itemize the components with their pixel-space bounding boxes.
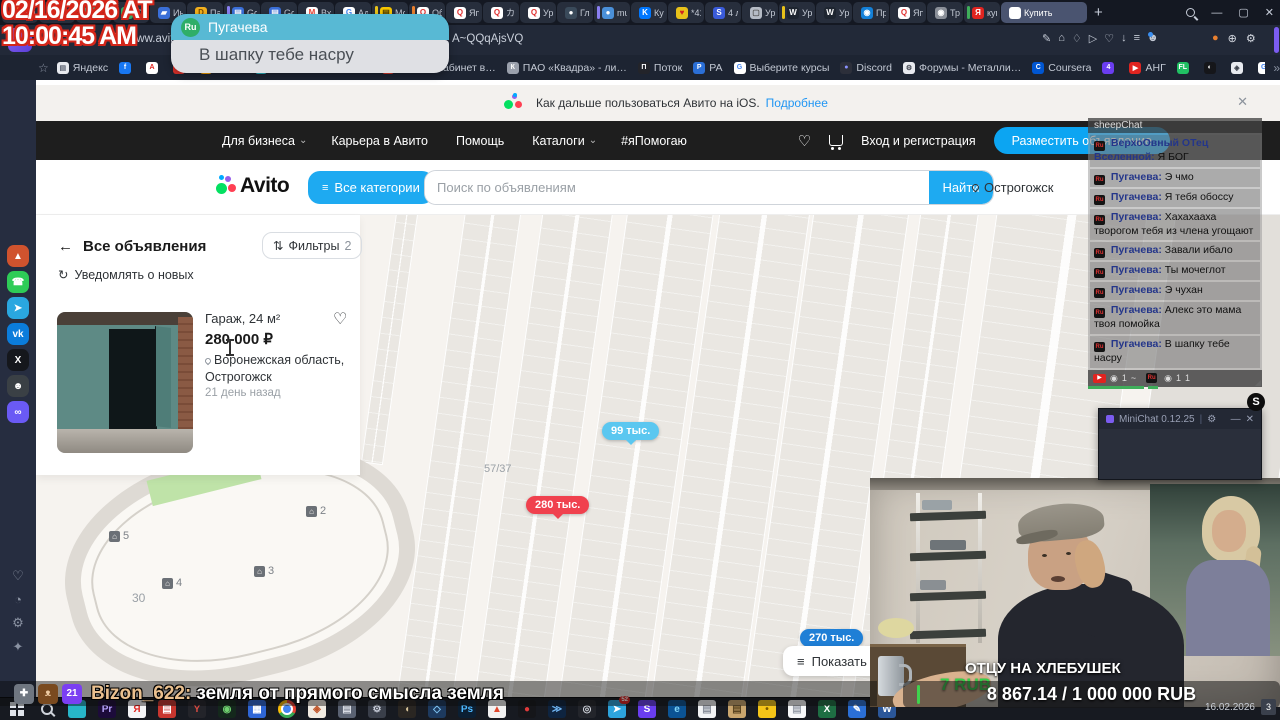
maximize-button[interactable]: ▢	[1238, 6, 1248, 19]
new-tab-button[interactable]: +	[1094, 4, 1103, 21]
tab-group-bar	[597, 6, 600, 19]
back-to-listings[interactable]: ← Все объявления	[58, 238, 206, 255]
viewer-count: 1	[1176, 373, 1181, 383]
bookmark-label: Coursera	[1048, 62, 1091, 74]
tab-label: *41	[691, 8, 701, 18]
tab-favicon: W	[824, 7, 836, 19]
listing-age: 21 день назад	[205, 387, 281, 399]
tab-group-bar	[560, 6, 563, 19]
bookmark-label: ПАО «Квадра» - ли…	[523, 62, 627, 74]
bookmark-item[interactable]: П Поток	[638, 62, 682, 74]
chevron-down-icon: ⌄	[589, 135, 597, 146]
plastic-bag	[878, 618, 914, 638]
tab-favicon: ♥	[676, 7, 688, 19]
toolbar-icon[interactable]: ≡	[1134, 32, 1140, 45]
nav-link-label: Для бизнеса	[222, 134, 295, 148]
toolbar-icon[interactable]: ♡	[1104, 32, 1114, 45]
bookmark-label: Discord	[856, 62, 892, 74]
bookmark-label: РА	[709, 62, 722, 74]
chat-message-text: земля от прямого смысла земля	[196, 683, 504, 705]
tab-group-bar	[523, 6, 526, 19]
chat-badge-icon: ᴥ	[38, 684, 58, 704]
nav-link-label: Карьера в Авито	[331, 134, 428, 148]
bookmark-item[interactable]: ⚙ Форумы - Металли…	[903, 62, 1021, 74]
map-price-pin[interactable]: 270 тыс.	[800, 629, 863, 647]
tab-favicon: ▰	[158, 7, 170, 19]
platform-badge-icon: Ru	[1094, 175, 1105, 185]
map-house-marker: ⌂ 5	[109, 530, 129, 542]
geo-pin-icon	[971, 183, 981, 193]
filters-icon: ⇅	[273, 238, 283, 253]
download-badge	[1148, 32, 1153, 37]
bookmark-favicon: ◈	[1231, 62, 1243, 74]
house-number: 5	[123, 530, 129, 542]
map-house-marker: ⌂ 2	[306, 505, 326, 517]
chat-username: Пугачева:	[1111, 244, 1162, 256]
chat-username: Пугачева:	[1111, 171, 1162, 183]
browser-right-icons: ●⊕⚙	[1212, 32, 1256, 45]
platform-badge-icon: Ru	[1094, 248, 1105, 258]
text-cursor	[229, 339, 231, 356]
map-area-label: 30	[132, 591, 145, 605]
tab-favicon: ●	[565, 7, 577, 19]
browser-sidebar: ▲☎➤vkX☻∞ ♡◔⚙✦	[0, 80, 36, 697]
tab-group-bar	[893, 6, 896, 19]
system-tray: 16.02.2026 3	[1205, 699, 1276, 715]
sheep-logo-icon[interactable]: S	[1247, 393, 1265, 411]
bookmark-favicon: G	[1258, 62, 1266, 74]
browser-tab[interactable]: ◉ Тре	[927, 2, 963, 23]
tab-favicon: ▢	[750, 7, 762, 19]
nav-links: Для бизнеса ⌄ Карьера в Авито Помощь Кат…	[222, 134, 691, 148]
cart-icon[interactable]	[829, 135, 843, 146]
banner-text: Как дальше пользоваться Авито на iOS.	[536, 96, 760, 110]
bookmark-item[interactable]: ● Discord	[840, 62, 892, 74]
browser-menu-icon[interactable]: ●	[1212, 32, 1219, 45]
browser-tab[interactable]: Q カタ	[483, 2, 519, 23]
viewer-count: 1	[1122, 373, 1127, 383]
bookmark-favicon: ▤	[57, 62, 69, 74]
listing-photo[interactable]	[57, 312, 193, 453]
close-icon[interactable]: ✕	[1246, 414, 1254, 425]
sheepchat-messages: Ru ВерхоОвный ОТец Вселенной: Я БОГ Ru П…	[1088, 135, 1262, 368]
search-group: Найти	[424, 170, 994, 205]
platform-badge-icon: Ru	[1094, 288, 1105, 298]
nav-link[interactable]: Помощь	[456, 134, 508, 148]
browser-tab[interactable]: ● mu	[594, 2, 630, 23]
bookmark-item[interactable]: ◐	[1204, 62, 1220, 74]
shelf-board	[910, 511, 986, 522]
url-text-suffix[interactable]: A~QQqAjsVQ	[452, 33, 523, 45]
bookmark-item[interactable]: C Coursera	[1032, 62, 1091, 74]
chat-message: Ru Пугачева: Ты мочеглот	[1090, 262, 1260, 280]
tab-label: 4 лу	[728, 8, 738, 18]
list-icon: ≡	[797, 654, 805, 669]
chat-message: Ru Пугачева: В шапку тебе насру	[1090, 336, 1260, 368]
tab-label: куп	[987, 8, 997, 18]
browser-tab[interactable]: S 4 лу	[705, 2, 741, 23]
browser-tab[interactable]: Q Уро	[520, 2, 556, 23]
tab-label: Тре	[950, 8, 960, 18]
listing-location: Воронежская область, Острогожск	[205, 352, 344, 386]
sidebar-app-icon[interactable]: ➤	[7, 297, 29, 319]
avito-dots-icon	[504, 94, 522, 112]
bookmark-item[interactable]: 4	[1102, 62, 1118, 74]
listings-panel: ← Все объявления ⇅ Фильтры 2 ↻ Уведомлят…	[36, 215, 360, 475]
nav-link[interactable]: Каталоги ⌄	[532, 134, 597, 148]
minimize-button[interactable]: —	[1211, 7, 1222, 19]
tab-favicon: ●	[602, 7, 614, 19]
bookmark-item[interactable]: G Google Переводчик	[1258, 62, 1266, 74]
bookmark-item[interactable]: P РА	[693, 62, 722, 74]
minimize-icon[interactable]: —	[1231, 414, 1241, 425]
nav-link[interactable]: Карьера в Авито	[331, 134, 432, 148]
browser-tab[interactable]: ◉ Пр	[853, 2, 889, 23]
chat-message: Ru Пугачева: Алекс это мама твоя помойка	[1090, 302, 1260, 334]
sidebar-utility-icons: ♡◔⚙✦	[0, 568, 36, 655]
sidebar-app-icon[interactable]: ☎	[7, 271, 29, 293]
tab-label: カタ	[506, 6, 516, 19]
browser-tab[interactable]: Q Япо	[446, 2, 482, 23]
map-building-block	[361, 215, 419, 465]
chat-text: Я БОГ	[1158, 151, 1189, 163]
chat-username: Пугачева:	[1111, 304, 1162, 316]
sidebar-utility-icon[interactable]: ✦	[13, 639, 24, 655]
sidebar-app-icon[interactable]: ∞	[7, 401, 29, 423]
banner-close-icon[interactable]: ✕	[1237, 94, 1248, 110]
listing-price[interactable]: 280 000 ₽	[205, 330, 273, 348]
chat-username: Пугачева:	[1111, 284, 1162, 296]
listing-title[interactable]: Гараж, 24 м²	[205, 311, 280, 326]
tab-label: Уро	[802, 8, 812, 18]
browser-tab[interactable]: W Уро	[779, 2, 815, 23]
progress-strip	[1088, 386, 1144, 389]
house-number: 2	[320, 505, 326, 517]
tab-label: Япо	[913, 8, 923, 18]
sheepchat-overlay: sheepChat Ru ВерхоОвный ОТец Вселенной: …	[1088, 118, 1262, 387]
toolbar-icon[interactable]: ↓	[1121, 32, 1127, 45]
bookmark-item[interactable]: А	[146, 62, 162, 74]
browser-tab[interactable]: Q Япо	[890, 2, 926, 23]
donation-progress-text: 8 867.14 / 1 000 000 RUB	[987, 684, 1196, 705]
tab-group-bar	[930, 6, 933, 19]
progress-strip	[1148, 386, 1158, 389]
tab-group-bar	[708, 6, 711, 19]
chat-message: Ru Пугачева: Э чмо	[1090, 169, 1260, 187]
close-button[interactable]: ✕	[1265, 6, 1274, 19]
tab-label: Купить	[1024, 8, 1052, 18]
bookmarks-overflow-chevron[interactable]: »	[1273, 61, 1280, 75]
bookmark-favicon: А	[146, 62, 158, 74]
house-icon: ⌂	[109, 531, 120, 542]
house-icon: ⌂	[254, 566, 265, 577]
chat-username: Пугачева:	[1111, 191, 1162, 203]
toast-message: В шапку тебе насру	[171, 40, 449, 73]
back-arrow-icon: ←	[58, 238, 73, 255]
map-block-label: 57/37	[484, 463, 512, 475]
bookmark-favicon: К	[507, 62, 519, 74]
chat-message: Ru Пугачева: Хахахааха творогом тебя из …	[1090, 209, 1260, 241]
house-number: 3	[268, 565, 274, 577]
tab-favicon: ◉	[861, 7, 873, 19]
donation-goal-title: ОТЦУ НА ХЛЕБУШЕК	[965, 660, 1121, 677]
chat-message: Ru Пугачева: Э чухан	[1090, 282, 1260, 300]
bookmark-label: Выберите курсы	[750, 62, 830, 74]
sidebar-app-icons: ▲☎➤vkX☻∞	[0, 245, 36, 423]
nav-link-label: #яПомогаю	[621, 134, 687, 148]
chat-badge-icon: ✚	[14, 684, 34, 704]
bookmark-favicon: f	[119, 62, 131, 74]
tab-favicon: Q	[491, 7, 503, 19]
tab-label: Уро	[765, 8, 775, 18]
bookmark-item[interactable]: ▶ АНГ	[1129, 62, 1165, 74]
house-icon: ⌂	[306, 506, 317, 517]
tab-label: Япо	[469, 8, 479, 18]
youtube-icon: ▶	[1093, 374, 1106, 383]
tab-group-bar	[782, 6, 785, 19]
sidebar-app-icon[interactable]: ☻	[7, 375, 29, 397]
tab-label: Куп	[654, 8, 664, 18]
browser-menu-icon[interactable]: ⚙	[1246, 32, 1256, 45]
platform-badge-icon: Ru	[1094, 268, 1105, 278]
platform-badge-icon: Ru	[1094, 141, 1105, 151]
tab-favicon: W	[787, 7, 799, 19]
rutube-icon: Ru	[1146, 373, 1157, 383]
minichat-window: MiniChat 0.12.25 | ⚙ — ✕	[1098, 408, 1262, 480]
location-selector[interactable]: Острогожск	[972, 180, 1053, 195]
chat-message: Ru ВерхоОвный ОТец Вселенной: Я БОГ	[1090, 135, 1260, 167]
bookmark-favicon: ▶	[1129, 62, 1141, 74]
bookmark-item[interactable]: ▤ Яндекс	[57, 62, 108, 74]
tab-favicon	[1009, 7, 1021, 19]
sidebar-app-icon[interactable]: vk	[7, 323, 29, 345]
chat-username: Bizon_622:	[91, 683, 191, 705]
favorites-heart-icon[interactable]: ♡	[798, 132, 811, 150]
bookmark-favicon: ⚙	[903, 62, 915, 74]
bookmark-star-icon[interactable]: ☆	[38, 61, 49, 75]
bookmark-label: Поток	[654, 62, 682, 74]
chat-text: Ты мочеглот	[1165, 264, 1226, 276]
browser-tab[interactable]: K Куп	[631, 2, 667, 23]
browser-tab[interactable]: ♥ *41	[668, 2, 704, 23]
tab-group-bar	[486, 6, 489, 19]
platform-badge-icon: Ru	[1094, 342, 1105, 352]
bookmark-favicon: C	[1032, 62, 1044, 74]
login-link[interactable]: Вход и регистрация	[861, 134, 975, 148]
screen: a Анг ▶ ОТе ● ОТе K ОТе ▰ Инс	[0, 0, 1280, 720]
clock-time: 10:00:45 AM	[2, 24, 152, 50]
chat-username: Пугачева:	[1111, 211, 1162, 223]
bookmark-item[interactable]: G Выберите курсы	[734, 62, 830, 74]
tab-group-bar	[634, 6, 637, 19]
nav-link-label: Помощь	[456, 134, 504, 148]
browser-tab[interactable]: ▢ Уро	[742, 2, 778, 23]
donation-progress-marker	[917, 685, 920, 704]
bookmark-item[interactable]: FL	[1177, 62, 1193, 74]
map-house-marker: ⌂ 4	[162, 577, 182, 589]
tab-favicon: K	[639, 7, 651, 19]
tab-favicon: Q	[528, 7, 540, 19]
toolbar-icon[interactable]: ✎	[1042, 32, 1051, 45]
chat-text: Завали ибало	[1165, 244, 1233, 256]
stream-clock-overlay: 02/16/2026 AT 10:00:45 AM	[2, 0, 152, 49]
tab-group-bar	[449, 6, 452, 19]
sheepchat-title: sheepChat	[1088, 118, 1262, 133]
toolbar-icon[interactable]: ▷	[1089, 32, 1097, 45]
window-controls: — ▢ ✕	[1186, 0, 1274, 25]
bell-refresh-icon: ↻	[58, 267, 68, 282]
chat-badge-icon: 21	[62, 684, 82, 704]
clock-date: 02/16/2026 AT	[2, 0, 152, 24]
tab-group-bar	[153, 6, 156, 19]
sidebar-utility-icon[interactable]: ⚙	[12, 615, 24, 631]
map-price-pin[interactable]: 280 тыс.	[526, 496, 589, 514]
bookmark-favicon: П	[638, 62, 650, 74]
resize-handle[interactable]: ◢	[1255, 378, 1261, 387]
chevron-down-icon: ⌄	[299, 135, 307, 146]
avito-logo-text: Avito	[240, 174, 289, 198]
bookmark-item[interactable]: ◈	[1231, 62, 1247, 74]
tab-group-bar	[819, 6, 822, 19]
tab-group-bar	[671, 6, 674, 19]
nav-link-label: Каталоги	[532, 134, 584, 148]
avito-logo[interactable]: Avito	[216, 174, 289, 198]
chat-text: Я тебя обоссу	[1165, 191, 1234, 203]
browser-tab[interactable]: Купить	[1001, 2, 1087, 23]
stream-chat-overlay: ✚ᴥ21 Bizon_622: земля от прямого смысла …	[0, 681, 877, 706]
tab-label: Уро	[543, 8, 553, 18]
toolbar-icon[interactable]: ♢	[1072, 32, 1082, 45]
tab-group-bar	[1004, 6, 1007, 19]
notify-new-listings[interactable]: ↻ Уведомлять о новых	[58, 267, 194, 282]
tab-list: a Анг ▶ ОТе ● ОТе K ОТе ▰ Инс	[2, 0, 1088, 25]
categories-icon: ≡	[322, 182, 328, 194]
minichat-title: MiniChat 0.12.25	[1119, 414, 1195, 425]
tab-group-bar	[745, 6, 748, 19]
favorite-heart-icon[interactable]: ♡	[333, 309, 347, 329]
tab-group-bar	[967, 6, 970, 19]
filters-count-badge: 2	[344, 239, 351, 253]
bookmark-favicon: FL	[1177, 62, 1189, 74]
tab-search-icon[interactable]	[1186, 8, 1195, 17]
bookmark-favicon: P	[693, 62, 705, 74]
bookmark-item[interactable]: К ПАО «Квадра» - ли…	[507, 62, 627, 74]
bookmark-label: Форумы - Металли…	[919, 62, 1021, 74]
map-price-pin[interactable]: 99 тыс.	[602, 422, 659, 440]
toast-sender: Пугачева	[208, 19, 268, 35]
avatar: Ru	[181, 18, 200, 37]
tab-label: Гла	[580, 8, 590, 18]
sidebar-utility-icon[interactable]: ♡	[12, 568, 24, 584]
nav-link[interactable]: Для бизнеса ⌄	[222, 134, 307, 148]
ios-banner: Как дальше пользоваться Авито на iOS. По…	[36, 85, 1280, 121]
sidebar-app-icon[interactable]: X	[7, 349, 29, 371]
chat-message: Ru Пугачева: Я тебя обоссу	[1090, 189, 1260, 207]
tab-group-bar	[856, 6, 859, 19]
banner-link[interactable]: Подробнее	[766, 96, 828, 110]
tab-label: mu	[617, 8, 627, 18]
bookmark-favicon: ●	[840, 62, 852, 74]
browser-tab[interactable]: W Уро	[816, 2, 852, 23]
sidebar-utility-icon[interactable]: ◔	[14, 592, 22, 607]
chat-username: Пугачева:	[1111, 338, 1162, 350]
sidebar-toggle-bar[interactable]	[1274, 27, 1279, 53]
map-house-marker: ⌂ 3	[254, 565, 274, 577]
chat-message: Ru Пугачева: Завали ибало	[1090, 242, 1260, 260]
nav-link[interactable]: #яПомогаю	[621, 134, 691, 148]
house-icon: ⌂	[162, 578, 173, 589]
browser-tab[interactable]: Я куп	[964, 2, 1000, 23]
platform-badge-icon: Ru	[1094, 308, 1105, 318]
chat-username: ВерхоОвный ОТец Вселенной:	[1094, 137, 1208, 163]
tab-label: Уро	[839, 8, 849, 18]
chat-text: Э чухан	[1165, 284, 1203, 296]
filters-button[interactable]: ⇅ Фильтры 2	[262, 232, 362, 259]
bookmark-item[interactable]: f	[119, 62, 135, 74]
chat-badges: ✚ᴥ21	[14, 684, 82, 704]
tab-favicon: Я	[972, 7, 984, 19]
chat-text: Э чмо	[1165, 171, 1194, 183]
bookmark-label: АНГ	[1145, 62, 1165, 74]
tab-favicon: Q	[454, 7, 466, 19]
platform-badge-icon: Ru	[1094, 215, 1105, 225]
viewer-count: 1	[1185, 373, 1190, 383]
gear-icon[interactable]: ⚙	[1207, 414, 1216, 425]
bookmark-favicon: ◐	[1204, 62, 1216, 74]
browser-tab[interactable]: ● Гла	[557, 2, 593, 23]
chat-notification-toast: Ru Пугачева В шапку тебе насру	[171, 14, 449, 73]
minichat-app-icon	[1106, 415, 1114, 423]
extension-icons: ✎⌂♢▷♡↓≡☻	[1042, 32, 1159, 45]
tab-favicon: Q	[898, 7, 910, 19]
sidebar-app-icon[interactable]: ▲	[7, 245, 29, 267]
notification-center-icon[interactable]: 3	[1261, 699, 1276, 715]
geo-pin-icon	[204, 357, 212, 365]
tab-favicon: S	[713, 7, 725, 19]
toolbar-icon[interactable]: ⌂	[1058, 32, 1065, 45]
bookmark-favicon: 4	[1102, 62, 1114, 74]
chat-username: Пугачева:	[1111, 264, 1162, 276]
bookmark-label: Яндекс	[73, 62, 108, 74]
tray-date[interactable]: 16.02.2026	[1205, 702, 1255, 713]
tab-favicon: ◉	[935, 7, 947, 19]
search-input[interactable]	[425, 171, 929, 204]
bookmark-favicon: G	[734, 62, 746, 74]
platform-badge-icon: Ru	[1094, 195, 1105, 205]
all-categories-button[interactable]: ≡ Все категории	[308, 171, 434, 204]
sheepchat-footer: ▶ ◉1 ~ Ru ◉1 1 ◢	[1088, 370, 1262, 387]
browser-menu-icon[interactable]: ⊕	[1228, 32, 1237, 45]
house-number: 4	[176, 577, 182, 589]
tab-label: Пр	[876, 8, 886, 18]
